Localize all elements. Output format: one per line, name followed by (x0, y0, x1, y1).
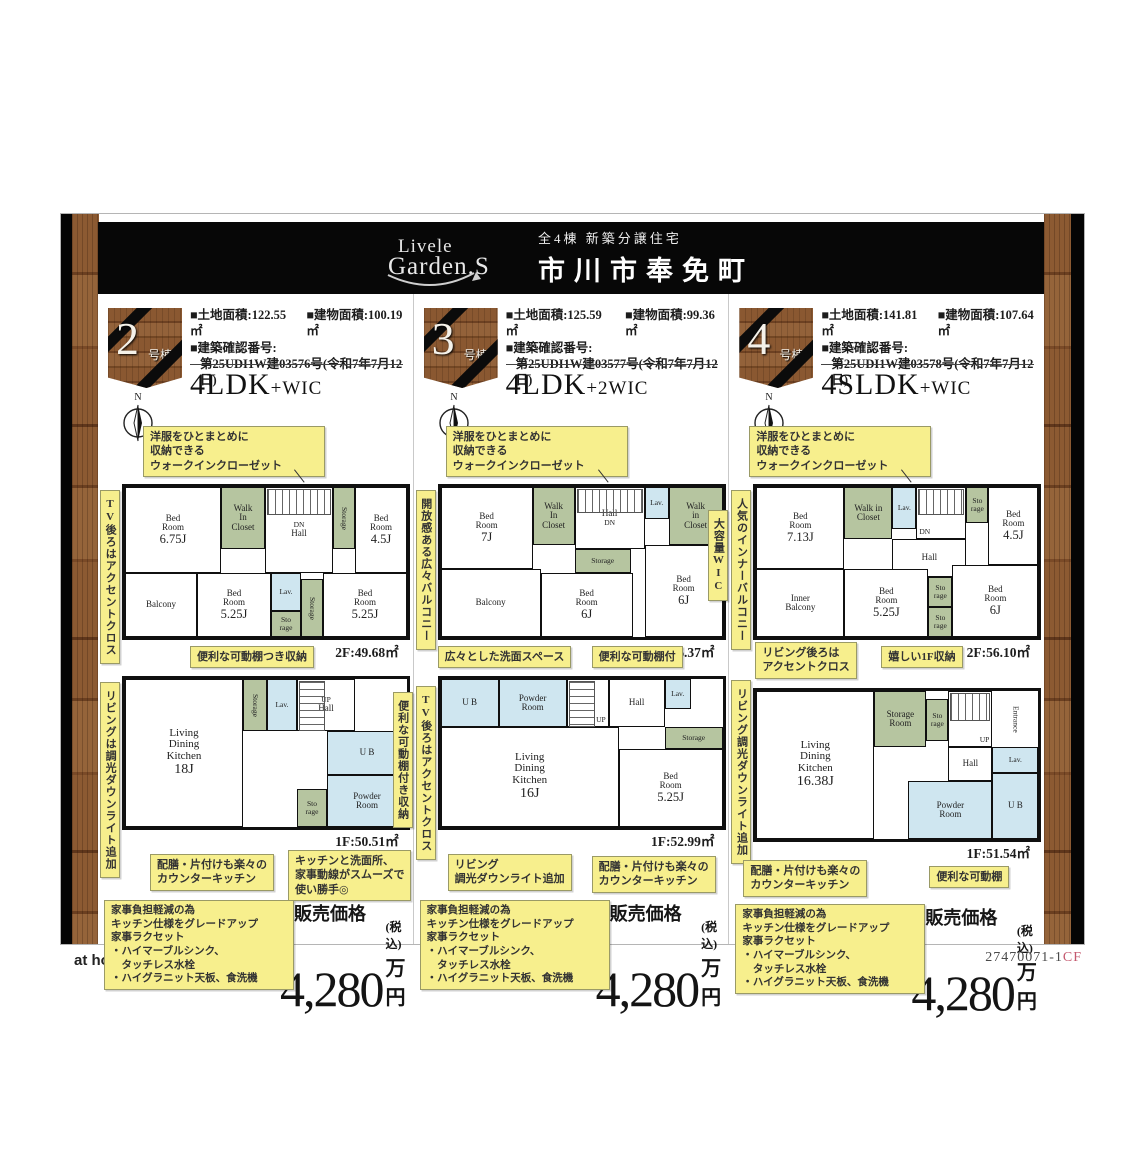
note-downlight: リビング調光ダウンライト追加 (731, 680, 751, 864)
note-counter-kitchen: 配膳・片付けも楽々の カウンターキッチン (592, 856, 716, 893)
spec-divider (506, 364, 719, 365)
unit-badge: 3 号棟 (424, 308, 498, 388)
flyer-page: { "header": { "logo_top": "Livele", "log… (0, 0, 1144, 1173)
building-area: ■建物面積:107.64㎡ (938, 307, 1040, 340)
room-storage: Storage (301, 579, 323, 637)
floor-plan-1f: Living Dining Kitchen 18J Storage Lav. U… (122, 676, 410, 830)
brand-logo: Livele Garden.S (388, 237, 508, 279)
room-storage: Storage (575, 549, 631, 573)
panel-unit-2: 2 号棟 ■土地面積:122.55㎡ ■建物面積:100.19㎡ ■建築確認番号… (98, 294, 413, 944)
price-unit: 万円 (701, 952, 728, 1010)
note-kitchen-flow: キッチンと洗面所、 家事動線がスムーズで 使い勝手◎ (288, 850, 411, 901)
room-storage-small: Sto rage (271, 611, 301, 637)
room-storage: Storage (665, 727, 723, 749)
price-tax: (税込) (386, 918, 413, 952)
floor-plan-2f: Bed Room 6.75J Walk In Closet DN Hall St… (122, 484, 410, 640)
area-label-1f: 1F:51.54㎡ (967, 842, 1030, 862)
note-price-features: 家事負担軽減の為 キッチン仕様をグレードアップ 家事ラクセット ・ハイマーブルシ… (735, 904, 925, 994)
layout-main: 4LDK (190, 368, 271, 402)
room-storage-room: Storage Room (874, 691, 926, 747)
spec-divider (190, 364, 403, 365)
footer-code-suffix: CF (1063, 950, 1082, 965)
note-movable-shelf: 便利な可動棚付き収納 (393, 692, 413, 828)
spec-divider (821, 364, 1034, 365)
price-amount: 4,280 (税込) 万円 (911, 922, 1044, 1014)
header-subtitle: 全4棟 新築分譲住宅 (538, 228, 754, 247)
stairs (577, 489, 643, 513)
room-balcony: Balcony (125, 573, 197, 637)
stairs (950, 693, 990, 721)
land-area: ■土地面積:122.55㎡ (190, 307, 292, 340)
area-label-1f: 1F:52.99㎡ (651, 830, 714, 850)
room-bedroom: Bed Room 4.5J (355, 487, 407, 573)
layout-name: 4LDK +WIC (190, 368, 322, 402)
room-storage-small: Sto rage (928, 577, 952, 607)
room-lavatory: Lav. (267, 679, 297, 731)
unit-badge: 4 号棟 (739, 308, 813, 388)
room-powder: Powder Room (499, 679, 567, 727)
layout-main: 4LDK (506, 368, 587, 402)
panels-row: 2 号棟 ■土地面積:122.55㎡ ■建物面積:100.19㎡ ■建築確認番号… (98, 294, 1044, 944)
room-ldk: Living Dining Kitchen 16J (441, 727, 619, 827)
flyer-frame: Livele Garden.S 全4棟 新築分譲住宅 市川市奉免町 2 号棟 ■… (60, 213, 1085, 945)
room-bedroom: Bed Room 6.75J (125, 487, 221, 573)
room-bedroom: Bed Room 5.25J (197, 573, 271, 637)
room-bedroom: Bed Room 5.25J (619, 749, 723, 827)
room-bath: U B (992, 773, 1038, 839)
note-washspace: 広々とした洗面スペース (438, 646, 572, 668)
building-area: ■建物面積:99.36㎡ (625, 307, 724, 340)
room-bedroom: Bed Room 7J (441, 487, 533, 569)
compass-n: N (134, 392, 141, 403)
room-lavatory: Lav. (645, 487, 669, 519)
note-accent-cross-1f: TV後ろはアクセントクロス (416, 686, 436, 860)
note-price-features: 家事負担軽減の為 キッチン仕様をグレードアップ 家事ラクセット ・ハイマーブルシ… (104, 900, 294, 990)
room-entrance (691, 679, 723, 727)
land-area: ■土地面積:125.59㎡ (506, 307, 611, 340)
footer-code-number: 27470071-1 (985, 950, 1063, 965)
note-1f-storage: 嬉しい1F収納 (881, 646, 962, 668)
panel-unit-3: 3 号棟 ■土地面積:125.59㎡ ■建物面積:99.36㎡ ■建築確認番号:… (413, 294, 729, 944)
room-walk-in-closet: Walk in Closet (844, 487, 892, 539)
note-downlight: リビング 調光ダウンライト追加 (448, 854, 572, 891)
price-amount: 4,280 (税込) 万円 (280, 918, 413, 1010)
svg-text:N: N (766, 392, 773, 403)
stairs (569, 681, 595, 727)
room-bedroom: Bed Room 5.25J (323, 573, 407, 637)
layout-sub: +2WIC (586, 378, 648, 400)
layout-main: 4SLDK (821, 368, 919, 402)
room-bath: U B (441, 679, 499, 727)
room-lavatory: Lav. (665, 679, 691, 709)
room-balcony: Balcony (441, 569, 541, 637)
room-storage-small: Sto rage (926, 699, 948, 741)
room-lavatory: Lav. (892, 487, 916, 529)
note-wic: 洋服をひとまとめに 収納できる ウォークインクローゼット (143, 426, 325, 477)
right-wood-border (1044, 214, 1071, 944)
logo-swoosh-icon (386, 270, 482, 292)
layout-sub: +WIC (271, 378, 323, 400)
confirm-label: ■建築確認番号: (506, 340, 725, 356)
floor-plan-1f: Living Dining Kitchen 16.38J Storage Roo… (753, 688, 1041, 842)
note-large-wic: 大容量WIC (708, 510, 728, 601)
room-hall: Hall (948, 747, 992, 781)
note-balcony-2f: 開放感ある広々バルコニー (416, 490, 436, 650)
unit-number: 3 (432, 316, 455, 362)
area-label-1f: 1F:50.51㎡ (335, 830, 398, 850)
left-wood-border (72, 214, 99, 944)
room-bedroom: Bed Room 6J (541, 573, 633, 637)
stairs (918, 489, 964, 515)
price-amount: 4,280 (税込) 万円 (596, 918, 729, 1010)
room-storage-small: Sto rage (297, 789, 327, 827)
footer-code: 27470071-1CF (985, 950, 1082, 966)
unit-number: 4 (747, 316, 770, 362)
header-title-block: 全4棟 新築分譲住宅 市川市奉免町 (538, 228, 754, 288)
floor-plan-1f: U B Powder Room UP Hall Lav. Storage Liv… (438, 676, 726, 830)
unit-suffix: 号棟 (464, 346, 488, 363)
unit-suffix: 号棟 (148, 346, 172, 363)
area-label-2f: 2F:56.10㎡ (967, 641, 1030, 661)
room-walk-in-closet: Walk In Closet (533, 487, 575, 545)
note-inner-balcony: 人気のインナーバルコニー (731, 490, 751, 650)
room-storage-small: Sto rage (966, 487, 988, 523)
room-ldk: Living Dining Kitchen 18J (125, 679, 243, 827)
building-area: ■建物面積:100.19㎡ (306, 307, 408, 340)
stairs (267, 489, 331, 515)
room-entrance: Entrance (992, 691, 1038, 747)
note-wic: 洋服をひとまとめに 収納できる ウォークインクローゼット (749, 426, 931, 477)
note-counter-kitchen: 配膳・片付けも楽々の カウンターキッチン (743, 860, 867, 897)
note-price-features: 家事負担軽減の為 キッチン仕様をグレードアップ 家事ラクセット ・ハイマーブルシ… (420, 900, 610, 990)
room-lavatory: Lav. (992, 747, 1038, 773)
floor-plan-2f: Bed Room 7.13J Walk in Closet Lav. DN St… (753, 484, 1041, 640)
room-inner-balcony: Inner Balcony (756, 569, 844, 637)
header-bar: Livele Garden.S 全4棟 新築分譲住宅 市川市奉免町 (98, 222, 1044, 294)
room-bedroom: Bed Room 6J (952, 565, 1038, 637)
note-counter-kitchen: 配膳・片付けも楽々の カウンターキッチン (150, 854, 274, 891)
room-storage: Storage (243, 679, 267, 731)
confirm-label: ■建築確認番号: (190, 340, 409, 356)
unit-suffix: 号棟 (779, 346, 803, 363)
price-value: 4,280 (911, 972, 1014, 1015)
price-value: 4,280 (596, 968, 699, 1011)
right-black-edge (1071, 214, 1084, 944)
floor-plan-2f: Bed Room 7J Walk In Closet Hall DN Lav. … (438, 484, 726, 640)
room-bedroom: Bed Room 4.5J (988, 487, 1038, 565)
unit-number: 2 (116, 316, 139, 362)
note-wic: 洋服をひとまとめに 収納できる ウォークインクローゼット (446, 426, 628, 477)
price-tax: (税込) (701, 918, 728, 952)
room-lavatory: Lav. (271, 573, 301, 611)
unit-badge: 2 号棟 (108, 308, 182, 388)
stairs (299, 681, 325, 731)
land-area: ■土地面積:141.81㎡ (821, 307, 923, 340)
room-hall: Hall (609, 679, 665, 727)
layout-name: 4LDK +2WIC (506, 368, 649, 402)
layout-name: 4SLDK +WIC (821, 368, 971, 402)
room-powder: Powder Room (908, 781, 992, 839)
price-unit: 万円 (386, 952, 413, 1010)
room-bedroom: Bed Room 7.13J (756, 487, 844, 569)
note-movable-shelf: 便利な可動棚 (929, 866, 1009, 888)
room-ldk: Living Dining Kitchen 16.38J (756, 691, 874, 839)
svg-text:N: N (450, 392, 457, 403)
left-black-edge (61, 214, 72, 944)
note-shelf-storage: 便利な可動棚つき収納 (190, 646, 314, 668)
room-walk-in-closet: Walk In Closet (221, 487, 265, 549)
room-storage-small: Sto rage (928, 607, 952, 637)
room-bedroom: Bed Room 5.25J (844, 569, 928, 637)
room-storage: Storage (333, 487, 355, 549)
note-downlight: リビングは調光ダウンライト追加 (100, 682, 120, 878)
note-accent-cross-1f: リビング後ろは アクセントクロス (755, 642, 856, 679)
confirm-label: ■建築確認番号: (821, 340, 1040, 356)
layout-sub: +WIC (920, 378, 972, 400)
note-accent-cross-2f: TV後ろはアクセントクロス (100, 490, 120, 664)
area-label-2f: 2F:49.68㎡ (335, 641, 398, 661)
page-title: 市川市奉免町 (538, 249, 754, 288)
note-shelf: 便利な可動棚付 (592, 646, 683, 668)
price-value: 4,280 (280, 968, 383, 1011)
panel-unit-4: 4 号棟 ■土地面積:141.81㎡ ■建物面積:107.64㎡ ■建築確認番号… (728, 294, 1044, 944)
